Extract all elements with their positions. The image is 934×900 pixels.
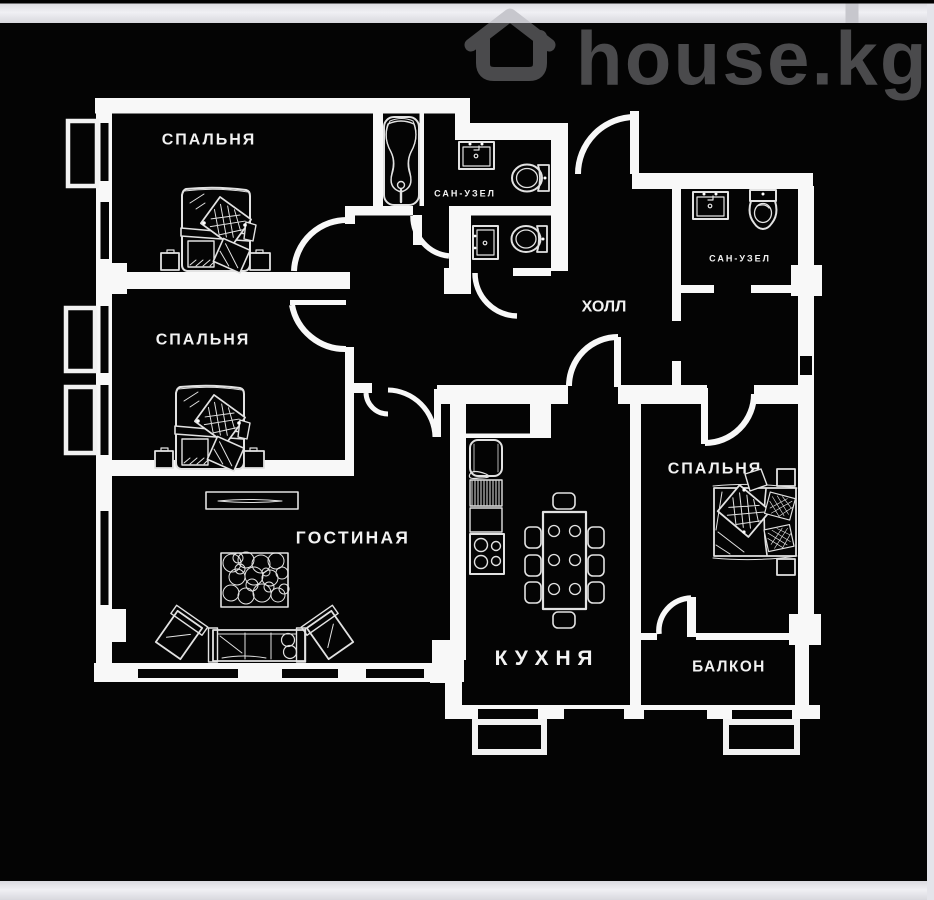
svg-text:БАЛКОН: БАЛКОН [692,659,766,676]
svg-text:ХОЛЛ: ХОЛЛ [582,299,627,316]
svg-text:КУХНЯ: КУХНЯ [495,647,600,670]
svg-text:ГОСТИНАЯ: ГОСТИНАЯ [296,528,410,548]
svg-text:СПАЛЬНЯ: СПАЛЬНЯ [162,132,257,149]
svg-text:САН-УЗЕЛ: САН-УЗЕЛ [434,189,496,199]
svg-text:СПАЛЬНЯ: СПАЛЬНЯ [156,332,251,349]
svg-text:house.kg: house.kg [576,17,929,102]
svg-text:САН-УЗЕЛ: САН-УЗЕЛ [709,254,771,264]
